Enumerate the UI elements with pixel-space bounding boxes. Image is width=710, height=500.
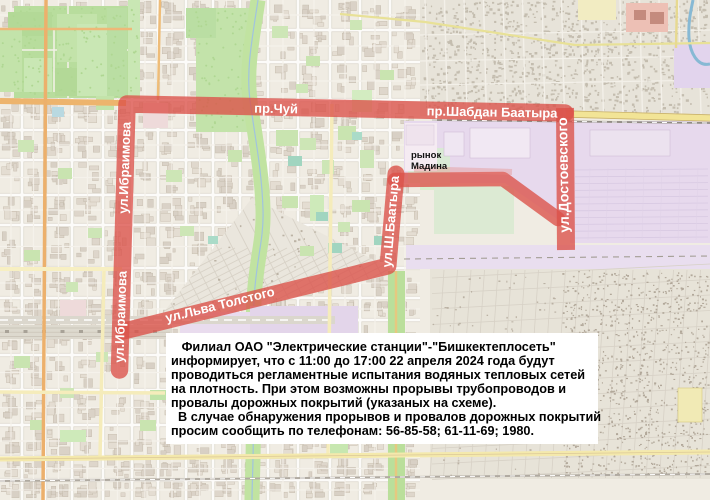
svg-text:пр.Чуй: пр.Чуй (254, 101, 298, 117)
svg-text:ул.Достоевского: ул.Достоевского (554, 117, 572, 233)
svg-text:пр.Шабдан Баатыра: пр.Шабдан Баатыра (427, 103, 559, 120)
svg-text:Мадина: Мадина (411, 161, 448, 172)
svg-text:рынок: рынок (411, 150, 441, 161)
